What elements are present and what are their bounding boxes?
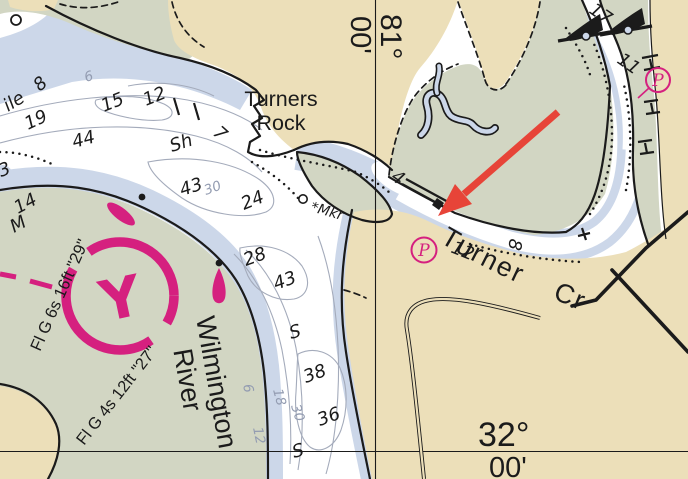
- turners-rock-label-1: Turners: [244, 87, 317, 111]
- longitude-minute-label: 00': [344, 16, 376, 54]
- chart-canvas: Y P P Turners Rock Turner Cr: [0, 0, 688, 479]
- longitude-degree-label: 81°: [374, 14, 407, 59]
- latitude-minute-label: 00': [489, 452, 527, 479]
- turners-rock-label-2: Rock: [257, 111, 306, 135]
- svg-text:P: P: [417, 241, 430, 261]
- nautical-chart: Y P P Turners Rock Turner Cr: [0, 0, 688, 479]
- svg-text:P: P: [651, 71, 664, 91]
- latitude-degree-label: 32°: [478, 416, 529, 454]
